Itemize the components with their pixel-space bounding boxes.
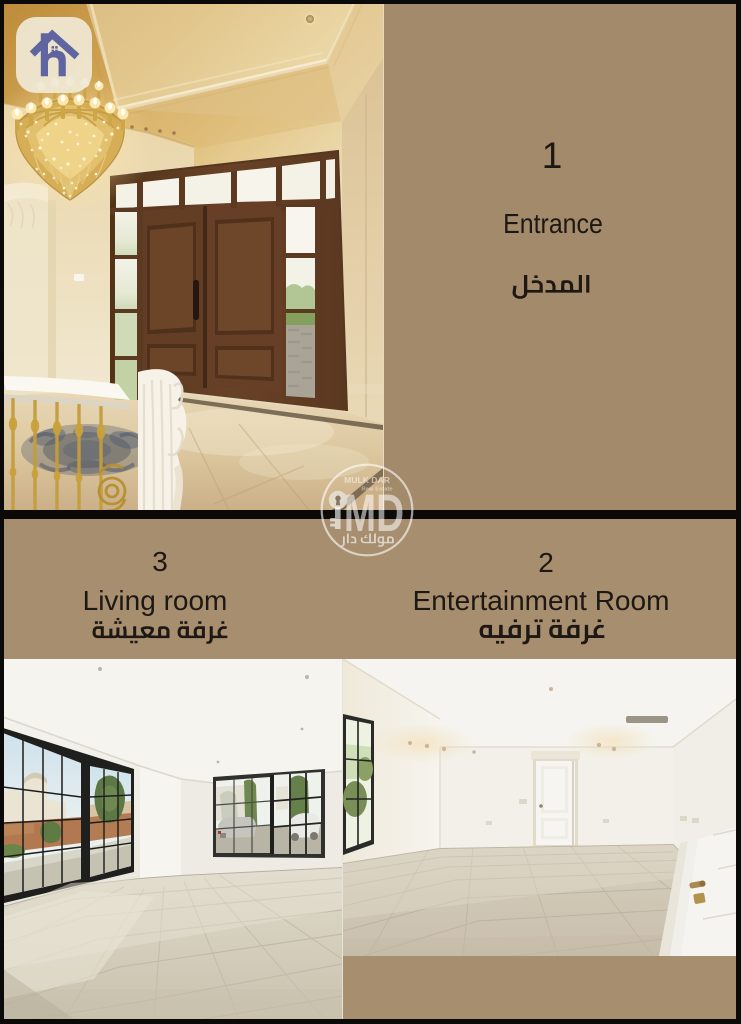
svg-text:MD: MD [344,483,404,542]
